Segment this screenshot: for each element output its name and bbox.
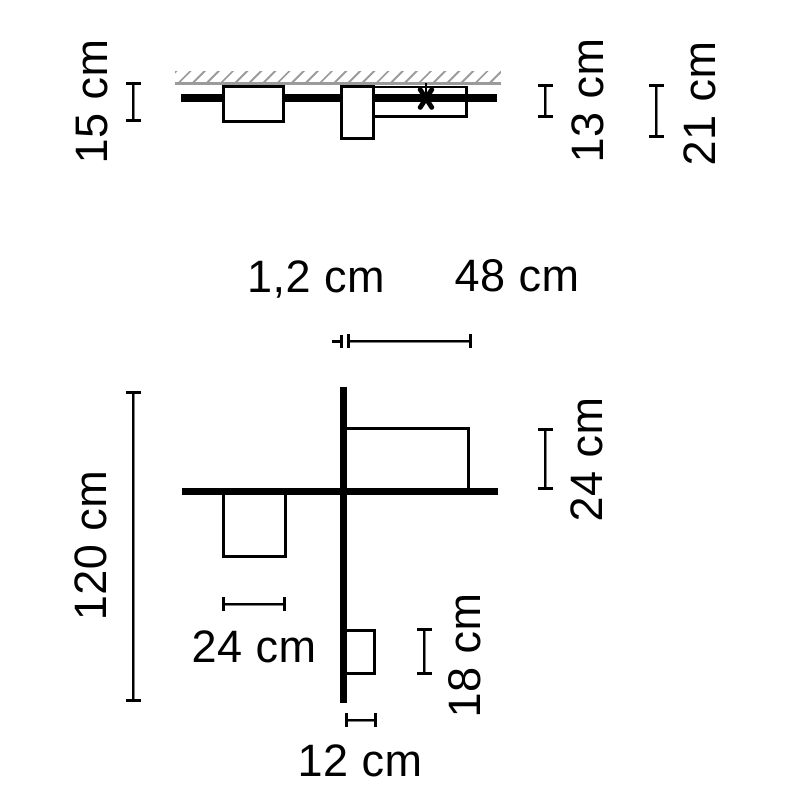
- dim-label-24cm-bottom: 24 cm: [144, 621, 364, 673]
- product-dimension-diagram: 15 cm 13 cm 21 cm 1,2 cm 48 cm 120 cm 24…: [0, 0, 800, 800]
- dim-label-24cm-right: 24 cm: [561, 369, 613, 549]
- plan-horizontal-blade: [182, 488, 498, 495]
- plan-top-panel: [347, 427, 470, 488]
- plan-left-box: [222, 495, 287, 558]
- dim-tick-24cm-right: [538, 428, 553, 490]
- dim-line-12cm: [345, 713, 377, 727]
- dim-tick-18cm: [417, 628, 432, 675]
- dim-label-12cm: 12 cm: [250, 735, 470, 787]
- dim-label-18cm: 18 cm: [439, 565, 491, 745]
- dim-line-24cm-bottom: [222, 597, 286, 611]
- dim-label-120cm: 120 cm: [65, 455, 117, 635]
- plan-view: 120 cm 24 cm 24 cm 18 cm 12 cm: [0, 0, 800, 800]
- dim-line-120cm: [126, 391, 141, 702]
